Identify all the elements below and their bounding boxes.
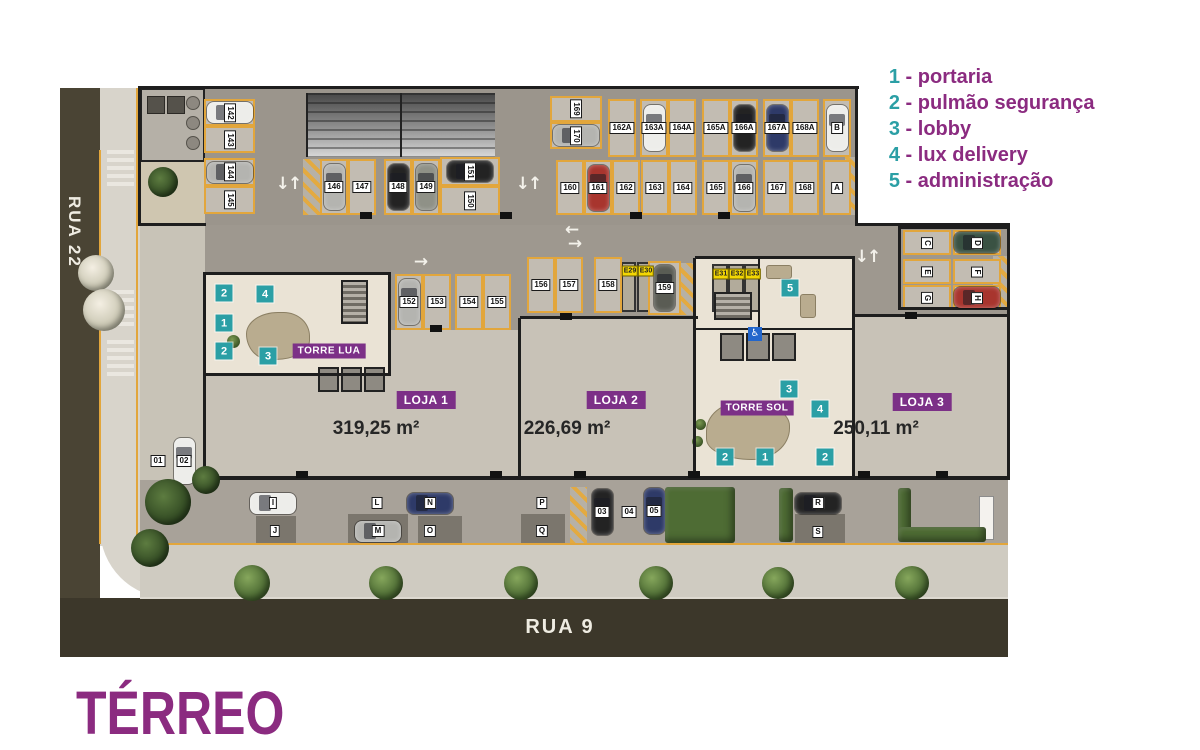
street-label-rua9: RUA 9	[470, 616, 650, 639]
tree	[895, 566, 929, 600]
street-spot-label: 03	[595, 506, 610, 518]
moto-spot-icon	[186, 136, 200, 150]
wall-stub	[500, 212, 512, 219]
parking-spot-label: 170	[570, 126, 582, 145]
crosswalk-bar	[107, 340, 134, 344]
parking-spot-label: 164A	[669, 122, 694, 134]
parking-spot-label: 142	[224, 103, 236, 122]
wall-stub	[936, 471, 948, 478]
tree	[504, 566, 538, 600]
parking-spot-label: B	[831, 122, 843, 134]
crosswalk-bar	[107, 348, 134, 352]
store-label: LOJA 1	[397, 391, 456, 409]
wall-stub	[905, 312, 917, 319]
palm-tree	[148, 167, 178, 197]
legend-marker-4: 4	[257, 286, 274, 303]
floorplan-page: RUA 22 RUA 9 1 - portaria2 - pulmão segu…	[0, 0, 1200, 750]
ramp-lane	[308, 93, 402, 157]
crosswalk-bar	[107, 174, 134, 178]
store-label: LOJA 2	[587, 391, 646, 409]
street-label-rua22: RUA 22	[64, 196, 84, 268]
wall-stub	[296, 471, 308, 478]
wall	[203, 272, 390, 275]
parking-spot-label: 147	[352, 181, 371, 193]
parking-spot-label: 152	[399, 296, 418, 308]
legend-item-label: - administração	[900, 170, 1053, 193]
road-edge-line	[140, 597, 1008, 599]
parking-spot-label: 151	[464, 162, 476, 181]
street-spot-label: 02	[177, 455, 192, 467]
street-spot-label: 01	[151, 455, 166, 467]
parking-spot-label: E	[921, 266, 933, 277]
street-spot-label: I	[269, 497, 277, 509]
wall	[898, 226, 1010, 229]
tower-label: TORRE SOL	[721, 401, 794, 416]
legend-marker-2: 2	[216, 343, 233, 360]
elevator	[364, 367, 385, 392]
flowering-tree	[83, 289, 125, 331]
parking-spot-label: 159	[655, 282, 674, 294]
crosswalk-bar	[107, 166, 134, 170]
floor-title: TÉRREO	[76, 678, 284, 749]
street-spot-label: P	[536, 497, 547, 509]
wall	[1007, 223, 1010, 480]
street-spot-label: J	[270, 525, 280, 537]
parking-spot-label: 156	[531, 279, 550, 291]
parking-spot-label: 163	[645, 182, 664, 194]
crosswalk-bar	[107, 372, 134, 376]
hedge	[779, 488, 793, 542]
legend-marker-5: 5	[782, 280, 799, 297]
equipment-box	[167, 96, 185, 114]
parking-spot-label: C	[921, 237, 933, 249]
wall	[138, 223, 206, 226]
bottom-sidewalk	[140, 545, 1008, 598]
parking-spot-label: 162A	[609, 122, 634, 134]
legend-item: 4 - lux delivery	[886, 144, 1095, 170]
tree	[369, 566, 403, 600]
parking-spot-label: 155	[487, 296, 506, 308]
equipment-box	[147, 96, 165, 114]
legend-marker-1: 1	[216, 315, 233, 332]
parking-spot-label: 168	[795, 182, 814, 194]
parking-spot-label: 167	[767, 182, 786, 194]
parking-spot-label: 149	[416, 181, 435, 193]
staircase	[341, 280, 368, 324]
legend-marker-2: 2	[717, 449, 734, 466]
legend-item: 5 - administração	[886, 170, 1095, 196]
wall-stub	[360, 212, 372, 219]
wall	[852, 258, 855, 480]
curb-line	[99, 150, 101, 544]
parking-spot-label: 145	[224, 190, 236, 209]
direction-arrow: →	[568, 234, 580, 254]
street-spot-label: L	[372, 497, 383, 509]
parking-spot-label: 163A	[641, 122, 666, 134]
street-spot-label: 04	[622, 506, 637, 518]
wall	[898, 226, 901, 310]
legend-item-label: - portaria	[900, 66, 992, 89]
wall	[695, 256, 855, 259]
crosswalk-bar	[107, 158, 134, 162]
parking-spot-label: 148	[388, 181, 407, 193]
palm-tree	[145, 479, 191, 525]
legend-marker-2: 2	[216, 285, 233, 302]
legend: 1 - portaria2 - pulmão segurança3 - lobb…	[886, 66, 1095, 196]
wall	[138, 86, 141, 226]
street-spot-label: Q	[536, 525, 548, 537]
parking-spot-label: 157	[559, 279, 578, 291]
parking-spot-label: A	[831, 182, 843, 194]
storage-spot-label: E30	[638, 266, 654, 277]
wall	[203, 373, 391, 376]
elevator	[341, 367, 362, 392]
storage-spot-label: E31	[713, 269, 729, 280]
parking-spot-label: D	[971, 237, 983, 249]
palm-tree	[192, 466, 220, 494]
store-area-value: 250,11 m²	[833, 418, 919, 440]
storage-spot-label: E32	[729, 269, 745, 280]
storage-spot-label: E33	[745, 269, 761, 280]
parking-spot-label: 166	[734, 182, 753, 194]
crosswalk-bar	[107, 364, 134, 368]
parking-spot-label: 150	[464, 191, 476, 210]
crosswalk-bar	[107, 182, 134, 186]
wall	[205, 476, 1010, 480]
side-yard	[140, 225, 205, 480]
legend-item: 1 - portaria	[886, 66, 1095, 92]
parking-spot-label: 166A	[731, 122, 756, 134]
lobby-furniture	[800, 294, 816, 318]
legend-marker-1: 1	[757, 449, 774, 466]
plant	[695, 419, 706, 430]
moto-spot-icon	[186, 96, 200, 110]
tower-label: TORRE LUA	[293, 344, 366, 359]
street-spot-label: O	[424, 525, 436, 537]
wall-stub	[858, 471, 870, 478]
legend-item-number: 5	[886, 170, 900, 193]
tree	[639, 566, 673, 600]
legend-marker-3: 3	[781, 381, 798, 398]
wall-stub	[430, 325, 442, 332]
crosswalk-bar	[107, 150, 134, 154]
direction-arrow: ↓↑	[276, 174, 301, 194]
parking-spot-label: 146	[324, 181, 343, 193]
hedge	[665, 487, 735, 543]
direction-arrow: ↓↑	[855, 247, 880, 267]
parking-spot-label: 162	[616, 182, 635, 194]
elevator	[772, 333, 796, 361]
legend-item-number: 1	[886, 66, 900, 89]
accessibility-icon: ♿	[748, 327, 762, 341]
street-spot-label: R	[812, 497, 824, 509]
parking-spot-label: 153	[427, 296, 446, 308]
parking-spot-label: 167A	[764, 122, 789, 134]
store-area-value: 226,69 m²	[524, 418, 611, 440]
garage-ramp	[306, 93, 494, 157]
staircase	[714, 292, 752, 320]
legend-item-label: - lux delivery	[900, 144, 1028, 167]
utility-room	[140, 88, 205, 162]
wall	[140, 86, 859, 89]
parking-spot-label: 160	[560, 182, 579, 194]
legend-item-number: 3	[886, 118, 900, 141]
store-area-value: 319,25 m²	[333, 418, 420, 440]
parking-spot-label: 165	[706, 182, 725, 194]
elevator	[318, 367, 339, 392]
legend-item-number: 4	[886, 144, 900, 167]
street-spot-label: S	[812, 526, 823, 538]
tree	[762, 567, 794, 599]
wall-stub	[630, 212, 642, 219]
hazard-hatch	[570, 487, 587, 543]
hedge	[898, 527, 986, 542]
legend-marker-4: 4	[812, 401, 829, 418]
parking-spot-label: F	[971, 266, 983, 277]
wall-stub	[490, 471, 502, 478]
palm-tree	[131, 529, 169, 567]
street-spot-label: M	[372, 525, 385, 537]
wall	[855, 86, 858, 226]
moto-spot-icon	[186, 116, 200, 130]
parking-spot-label: 143	[224, 130, 236, 149]
wall	[855, 314, 1008, 317]
street-spot-label: 05	[647, 505, 662, 517]
lobby-furniture	[766, 265, 792, 279]
storage-spot-label: E29	[622, 266, 638, 277]
wall	[518, 318, 521, 478]
parking-spot-label: 144	[224, 162, 236, 181]
legend-item-number: 2	[886, 92, 900, 115]
ramp-lane	[401, 93, 495, 157]
parking-spot-label: 158	[598, 279, 617, 291]
wall-stub	[718, 212, 730, 219]
ramp-divider	[400, 93, 402, 157]
tree	[234, 565, 270, 601]
legend-marker-2: 2	[817, 449, 834, 466]
wall	[520, 316, 698, 319]
wall	[693, 258, 696, 480]
parking-spot-label: 161	[588, 182, 607, 194]
legend-item-label: - lobby	[900, 118, 971, 141]
parking-spot-label: 169	[570, 99, 582, 118]
wall-stub	[688, 471, 700, 478]
elevator	[720, 333, 744, 361]
curb-line	[140, 543, 1008, 545]
store-label: LOJA 3	[893, 393, 952, 411]
parking-spot-label: 168A	[792, 122, 817, 134]
flowering-tree	[78, 255, 114, 291]
parking-spot-label: 165A	[703, 122, 728, 134]
legend-item: 2 - pulmão segurança	[886, 92, 1095, 118]
legend-item: 3 - lobby	[886, 118, 1095, 144]
parking-spot-label: 154	[459, 296, 478, 308]
legend-marker-3: 3	[260, 348, 277, 365]
legend-item-label: - pulmão segurança	[900, 92, 1095, 115]
direction-arrow: ↓↑	[516, 174, 541, 194]
crosswalk-bar	[107, 356, 134, 360]
wall-stub	[560, 313, 572, 320]
direction-arrow: →	[414, 252, 426, 272]
wall	[388, 272, 391, 376]
parking-spot-label: 164	[673, 182, 692, 194]
legend-list: 1 - portaria2 - pulmão segurança3 - lobb…	[886, 66, 1095, 196]
wall	[695, 328, 853, 330]
street-spot-label: N	[424, 497, 436, 509]
wall-stub	[574, 471, 586, 478]
road-rua22	[60, 88, 100, 600]
parking-spot-label: G	[921, 291, 933, 303]
parking-spot-label: H	[971, 292, 983, 304]
